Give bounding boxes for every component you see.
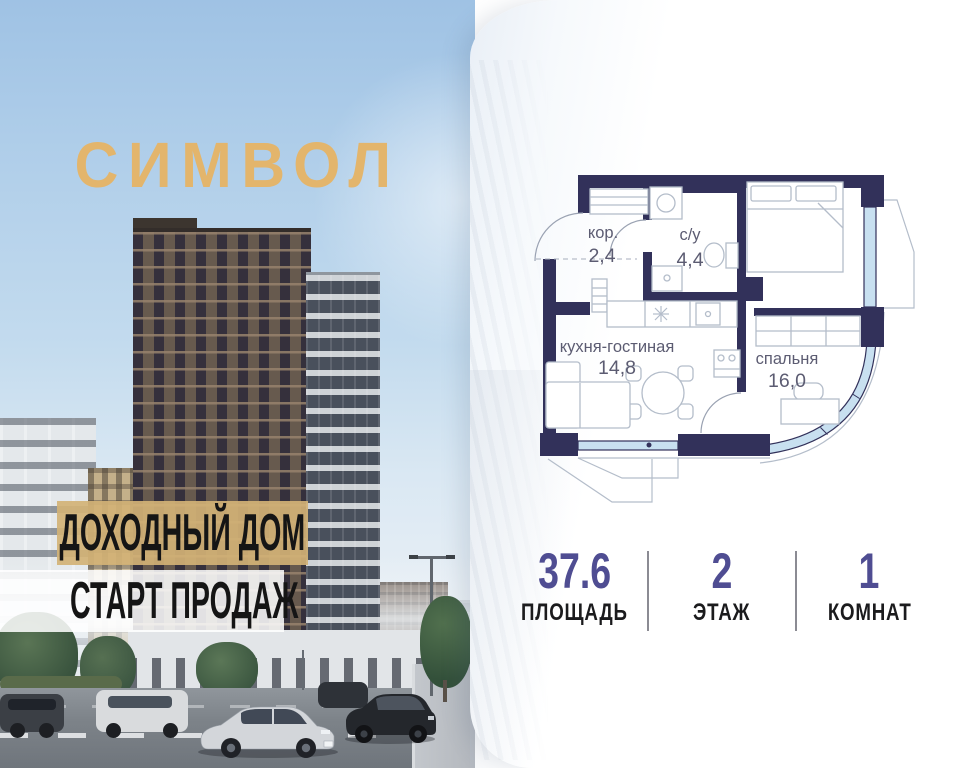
room-area: 16,0 xyxy=(768,370,806,392)
stat-floor-value: 2 xyxy=(712,545,733,597)
hob-icon xyxy=(653,306,669,322)
banner-income-house-label: ДОХОДНЫЙ ДОМ xyxy=(60,503,306,563)
car-window xyxy=(8,699,56,710)
dresser xyxy=(754,308,864,346)
car-wheel xyxy=(106,723,121,738)
room-area: 2,4 xyxy=(588,245,615,267)
stat-floor: 2 ЭТАЖ xyxy=(649,545,794,627)
room-area: 4,4 xyxy=(676,249,703,271)
room-name: спальня xyxy=(756,350,819,368)
car-window xyxy=(108,696,172,708)
stat-floor-label: ЭТАЖ xyxy=(693,599,750,627)
car-wheel xyxy=(163,723,178,738)
building-photo: ДОХОДНЫЙ ДОМ СТАРТ ПРОДАЖ СИМВОЛ xyxy=(0,0,475,768)
stat-area: 37.6 ПЛОЩАДЬ xyxy=(502,545,647,627)
tree xyxy=(420,596,472,688)
car-wheel xyxy=(39,723,54,738)
apartment-stats: 37.6 ПЛОЩАДЬ 2 ЭТАЖ 1 КОМНАТ xyxy=(502,545,942,631)
driving-car-silver xyxy=(193,698,343,760)
radiator xyxy=(592,279,607,312)
tree-trunk xyxy=(443,680,447,702)
bed xyxy=(747,182,843,272)
dining-table xyxy=(626,366,693,419)
info-panel: кор. 2,4 с/у 4,4 кухня-гостиная 14,8 спа… xyxy=(470,0,975,768)
driving-car-dark xyxy=(340,686,440,748)
wardrobe xyxy=(590,189,648,214)
banner-income-house: ДОХОДНЫЙ ДОМ xyxy=(57,501,308,565)
toilet xyxy=(704,243,738,268)
street-lamp-far xyxy=(302,650,304,690)
kitchen-sink xyxy=(696,303,720,325)
stove xyxy=(714,350,740,377)
room-name: с/у xyxy=(679,226,701,244)
stat-rooms: 1 КОМНАТ xyxy=(797,545,942,627)
room-name: кор. xyxy=(588,224,618,242)
listing-card: ДОХОДНЫЙ ДОМ СТАРТ ПРОДАЖ СИМВОЛ xyxy=(0,0,975,768)
banner-sales-start-label: СТАРТ ПРОДАЖ xyxy=(70,571,298,631)
stat-area-label: ПЛОЩАДЬ xyxy=(521,599,628,627)
floorplan: кор. 2,4 с/у 4,4 кухня-гостиная 14,8 спа… xyxy=(530,160,975,510)
room-area: 14,8 xyxy=(598,357,636,379)
parked-car-dark xyxy=(0,694,64,732)
room-name: кухня-гостиная xyxy=(560,338,675,356)
stat-area-value: 37.6 xyxy=(538,545,611,597)
parked-car-white xyxy=(96,690,188,732)
banner-sales-start: СТАРТ ПРОДАЖ xyxy=(0,570,284,632)
stat-rooms-label: КОМНАТ xyxy=(827,599,911,627)
brand-logo: СИМВОЛ xyxy=(12,128,463,202)
stat-rooms-value: 1 xyxy=(859,545,880,597)
street-lamp-head xyxy=(409,555,418,559)
washing-machine xyxy=(650,187,682,219)
street-lamp-head xyxy=(446,555,455,559)
car-wheel xyxy=(10,723,25,738)
